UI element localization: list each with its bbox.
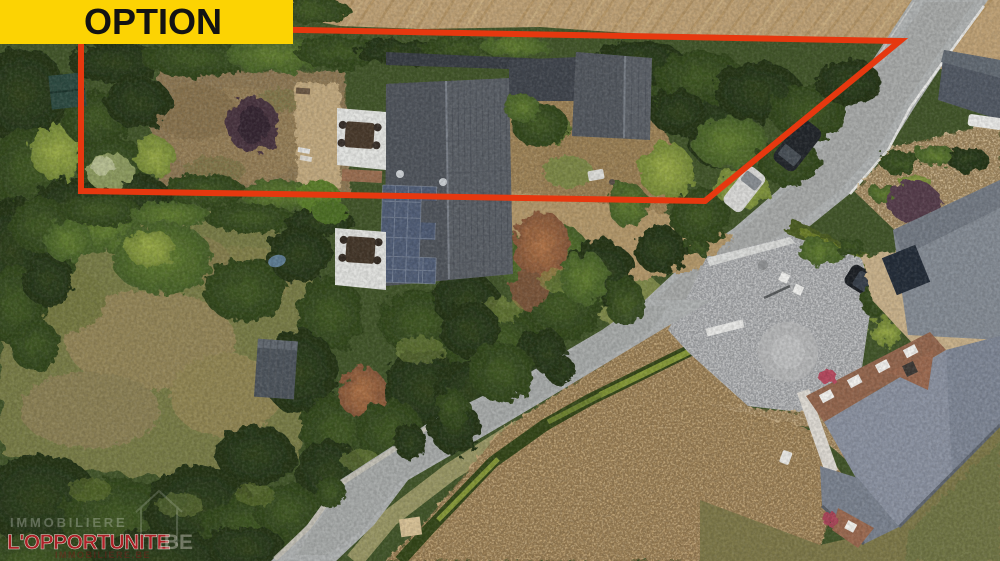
svg-text:.BE: .BE <box>158 531 193 554</box>
svg-text:IMMOBILIERE.BE: IMMOBILIERE.BE <box>55 550 151 560</box>
svg-text:IMMOBILIERE: IMMOBILIERE <box>10 515 127 530</box>
svg-text:OPTION: OPTION <box>84 1 222 42</box>
